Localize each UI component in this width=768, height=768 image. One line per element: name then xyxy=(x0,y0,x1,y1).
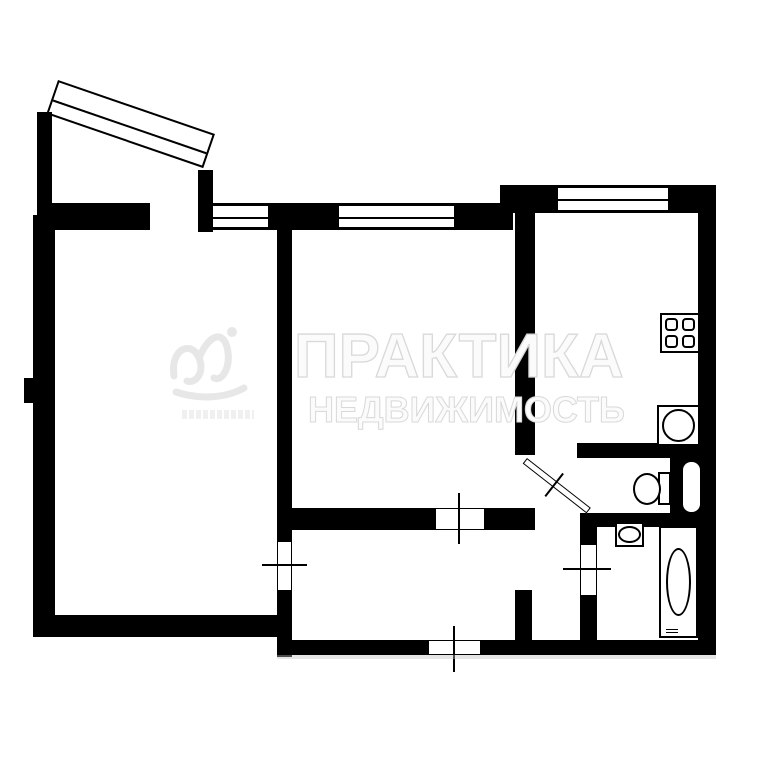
balcony-railing-line xyxy=(53,100,207,155)
wall-left xyxy=(33,215,55,637)
wall-kitchen-top-left xyxy=(500,185,558,213)
wall-kitchen-top-right xyxy=(668,185,716,213)
wall-bedroom-bottom-right xyxy=(486,508,535,530)
washbasin-bowl xyxy=(618,526,641,543)
living-room-window xyxy=(213,203,268,230)
bedroom-door-tick xyxy=(458,493,460,544)
vent-shaft xyxy=(683,462,700,512)
wall-hall-bottom-left xyxy=(277,640,427,655)
kitchen-door xyxy=(523,458,591,513)
kitchen-window xyxy=(558,185,668,213)
bedroom-door xyxy=(434,508,486,530)
wall-bath-left-lower xyxy=(580,597,597,643)
wall-left-pilaster xyxy=(24,378,34,403)
bathroom-door-tick xyxy=(563,568,611,570)
bathtub-oval xyxy=(666,548,691,616)
wall-right xyxy=(698,213,716,655)
wall-duct-block xyxy=(670,457,716,517)
window-mid-line xyxy=(213,217,268,219)
entry-door-tick xyxy=(453,626,455,672)
burner-icon xyxy=(665,318,678,331)
bedroom-window xyxy=(339,203,454,230)
wall-balcony-right-stub xyxy=(198,170,213,232)
kitchen-sink-bowl xyxy=(662,409,695,442)
watermark-caption xyxy=(182,410,254,419)
wall-bath-left-upper xyxy=(580,527,597,543)
wall-living-bedroom-upper xyxy=(277,203,292,540)
kitchen-sink xyxy=(657,405,700,446)
bathroom-door xyxy=(580,543,597,597)
wall-step-connector xyxy=(500,213,513,230)
watermark-logo-icon xyxy=(168,318,268,406)
living-room-door xyxy=(277,540,292,592)
watermark-subtitle: НЕДВИЖИМОСТЬ xyxy=(308,392,625,428)
watermark-title: ПРАКТИКА xyxy=(294,326,624,388)
wall-top-living xyxy=(38,203,150,230)
window-mid-line xyxy=(558,199,668,201)
bathtub-drain xyxy=(666,629,678,630)
balcony xyxy=(46,80,215,168)
toilet-bowl xyxy=(633,473,661,505)
window-mid-line xyxy=(339,217,454,219)
stove xyxy=(660,313,700,353)
wall-bedroom-bottom-left xyxy=(292,508,434,530)
washbasin xyxy=(615,522,644,547)
living-room-door-tick xyxy=(262,564,307,566)
wall-hall-bottom-right xyxy=(482,640,716,655)
wall-living-bottom xyxy=(33,615,277,637)
burner-icon xyxy=(682,335,695,348)
kitchen-door-tick xyxy=(544,473,563,497)
wall-shadow xyxy=(277,655,716,659)
burner-icon xyxy=(682,318,695,331)
bathtub xyxy=(659,526,698,638)
floor-plan: ПРАКТИКА НЕДВИЖИМОСТЬ xyxy=(0,0,768,768)
burner-icon xyxy=(665,335,678,348)
wall-entry-stub xyxy=(515,590,532,643)
